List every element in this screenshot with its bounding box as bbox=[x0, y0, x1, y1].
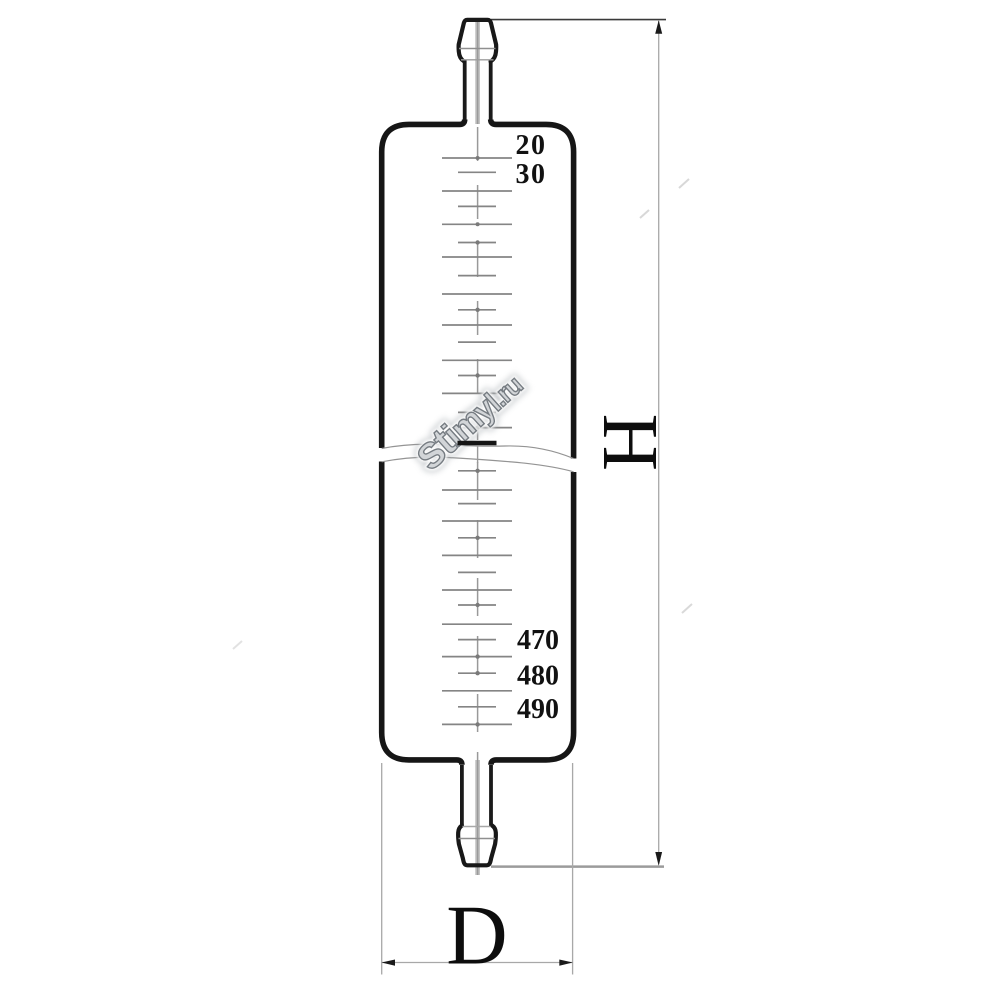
svg-text:490: 490 bbox=[517, 694, 559, 725]
svg-text:20: 20 bbox=[516, 130, 547, 161]
svg-text:480: 480 bbox=[517, 660, 559, 691]
svg-text:470: 470 bbox=[517, 625, 559, 656]
svg-text:H: H bbox=[586, 414, 674, 471]
svg-text:D: D bbox=[446, 889, 507, 983]
svg-text:30: 30 bbox=[516, 159, 547, 190]
